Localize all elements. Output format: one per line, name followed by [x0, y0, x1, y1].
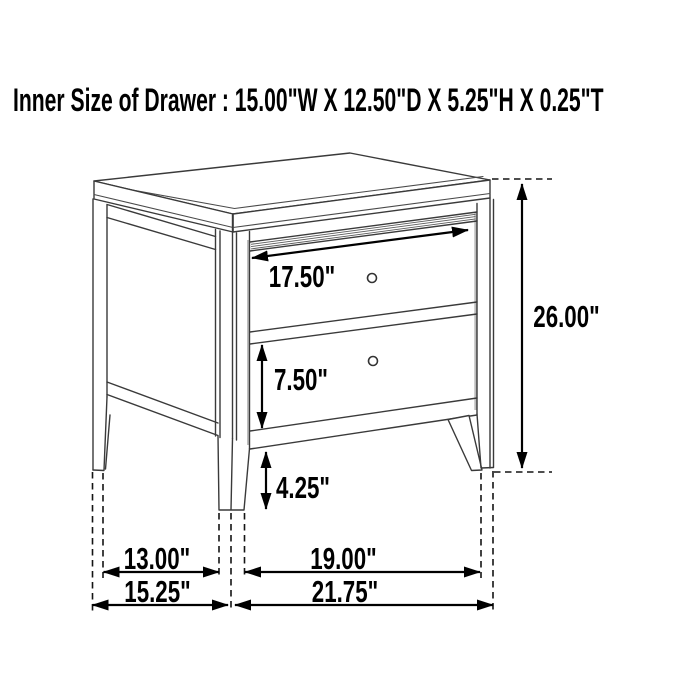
label-front-leg-span: 19.00"	[310, 541, 376, 575]
mid-rail	[250, 302, 477, 344]
dimension-labels: 17.50" 26.00" 7.50" 4.25" 13.00" 19.00" …	[124, 259, 600, 608]
back-left-leg	[93, 397, 110, 471]
bottom-drawer	[369, 357, 378, 366]
bottom-drawer-knob	[369, 357, 378, 366]
front-right-post	[477, 198, 494, 468]
label-side-leg-span: 13.00"	[124, 541, 190, 575]
side-bottom-rail	[107, 382, 218, 436]
furniture-dimension-diagram: Inner Size of Drawer : 15.00"W X 12.50"D…	[0, 0, 700, 700]
label-drawer-front-width: 17.50"	[269, 259, 335, 293]
front-left-post	[233, 215, 250, 449]
label-overall-width: 21.75"	[312, 574, 378, 608]
label-overall-height: 26.00"	[533, 299, 599, 333]
label-leg-height: 4.25"	[276, 470, 330, 504]
label-overall-depth: 15.25"	[124, 574, 190, 608]
top-drawer-knob	[368, 274, 377, 283]
side-front-stile	[216, 230, 221, 438]
label-lower-drawer-height: 7.50"	[274, 362, 328, 396]
front-left-leg	[218, 436, 250, 510]
top-drawer	[368, 274, 377, 283]
cabinet-left-side	[93, 199, 220, 470]
nightstand-drawing: 17.50" 26.00" 7.50" 4.25" 13.00" 19.00" …	[0, 0, 700, 700]
bottom-rail	[250, 398, 477, 449]
back-right-leg	[448, 416, 482, 471]
